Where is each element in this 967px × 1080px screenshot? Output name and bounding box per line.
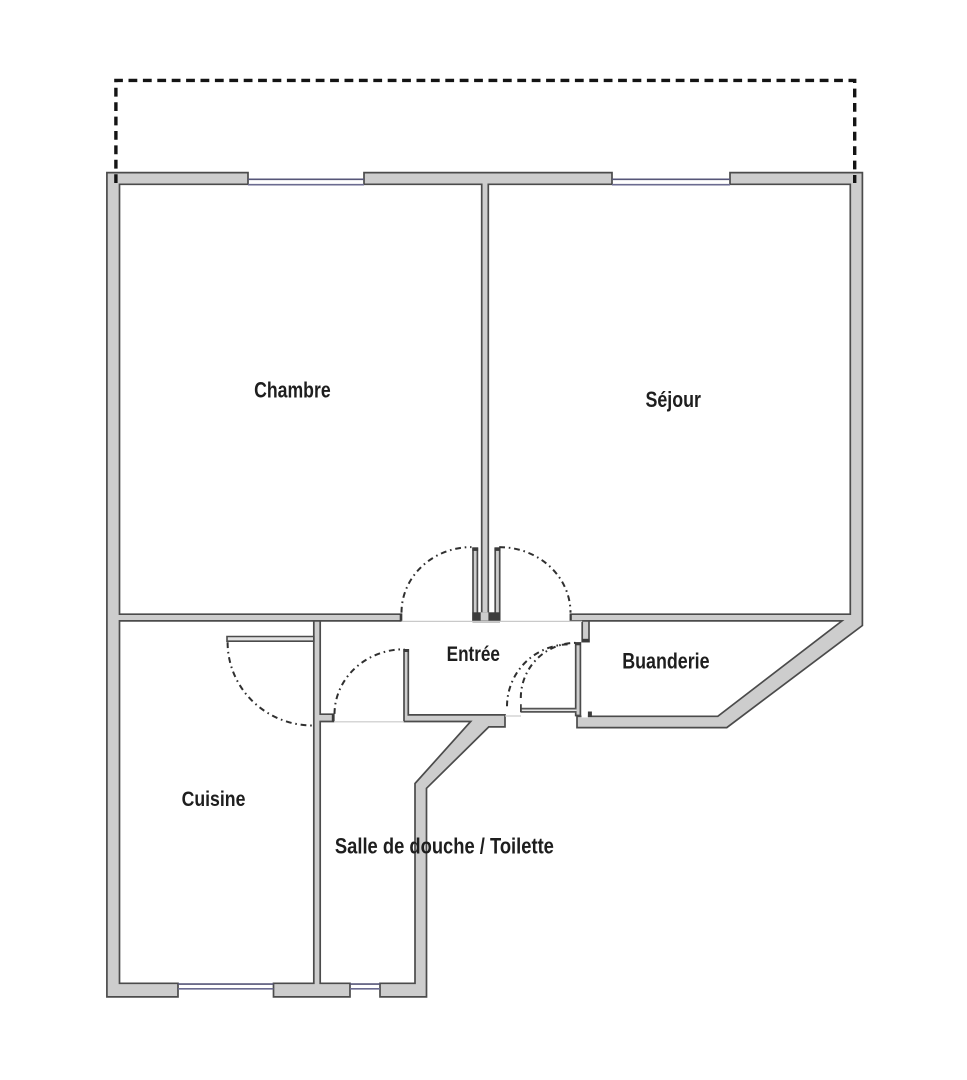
svg-text:Cuisine: Cuisine bbox=[182, 788, 246, 811]
svg-text:Chambre: Chambre bbox=[254, 377, 331, 402]
svg-text:Buanderie: Buanderie bbox=[622, 649, 709, 674]
svg-text:Séjour: Séjour bbox=[645, 387, 701, 412]
svg-text:Salle de douche / Toilette: Salle de douche / Toilette bbox=[335, 833, 554, 858]
svg-text:Entrée: Entrée bbox=[447, 643, 500, 666]
